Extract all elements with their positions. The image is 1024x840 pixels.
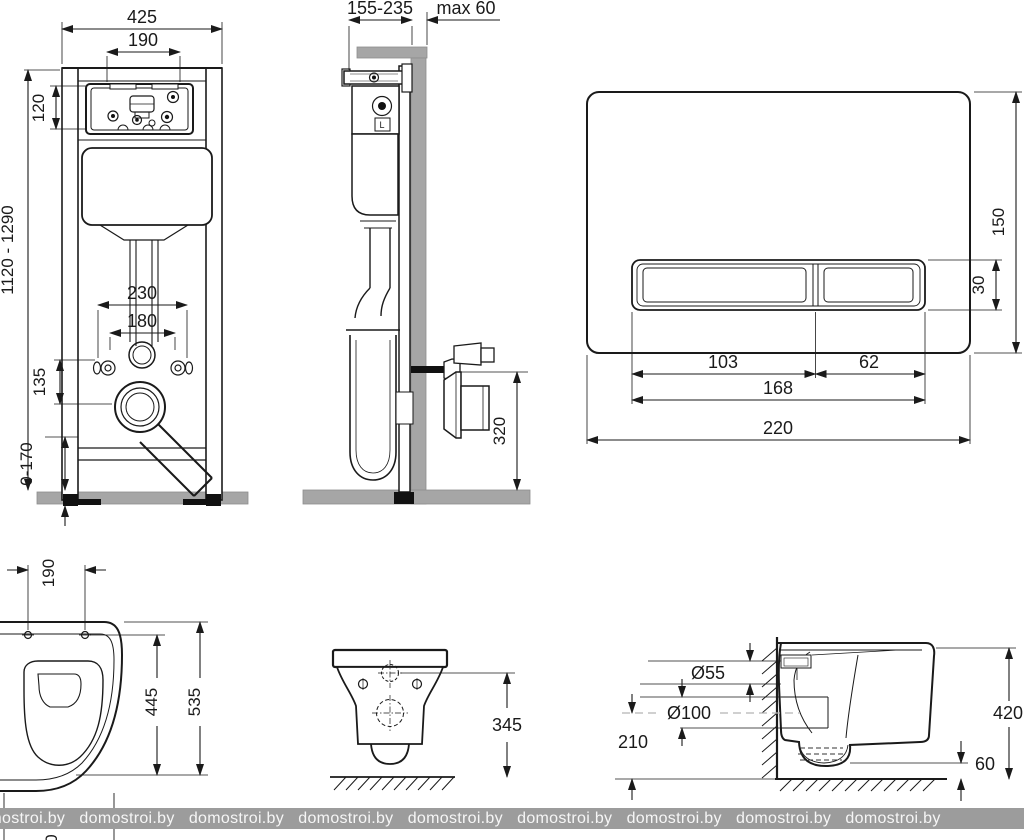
side-rail (399, 66, 410, 492)
dim-buttons-total: 168 (763, 378, 793, 398)
tank-label: L (379, 120, 384, 130)
floor-side (303, 490, 530, 504)
frame-rail-right (206, 68, 222, 500)
drawing-svg: 425 190 120 1120 - 1290 230 180 135 0-17… (0, 0, 1024, 840)
dim-bowl-height: 420 (993, 703, 1023, 723)
dim-button-height: 30 (969, 276, 988, 295)
technical-drawing-page: 425 190 120 1120 - 1290 230 180 135 0-17… (0, 0, 1024, 840)
dim-big-button: 103 (708, 352, 738, 372)
dim-outlet-center-height: 210 (618, 732, 648, 752)
bowl-rear-body (337, 667, 443, 744)
dim-depth-range: 155-235 (347, 0, 413, 18)
dim-height-range: 1120 - 1290 (0, 205, 17, 294)
plate-body (587, 92, 970, 353)
dim-access-width: 190 (128, 30, 158, 50)
dim-plate-width: 220 (763, 418, 793, 438)
access-box (86, 84, 193, 134)
wall-hatch (762, 637, 777, 779)
dim-wall-max: max 60 (436, 0, 495, 18)
labels-frame-front: 425 190 120 1120 - 1290 230 180 135 0-17… (0, 7, 158, 486)
partial-dimension: 0 (42, 834, 61, 840)
dim-access-height: 120 (29, 94, 48, 122)
frame-rail-left (62, 68, 78, 500)
view-bowl-rear (330, 650, 455, 790)
dim-foot-range: 0-170 (17, 442, 36, 485)
watermark-band: domostroi.by domostroi.by domostroi.by d… (0, 808, 1024, 829)
dim-rod-spacing: 230 (127, 283, 157, 303)
dim-plate-height: 150 (989, 208, 1008, 236)
dim-inner-depth: 445 (142, 688, 161, 716)
dim-inner-spacing: 180 (127, 311, 157, 331)
cistern-side (352, 86, 399, 228)
floor-hatch (775, 779, 947, 791)
dim-inlet-diameter: Ø55 (691, 663, 725, 683)
dim-outlet-height: 320 (490, 417, 509, 445)
wall-top-bar (357, 47, 427, 58)
watermark-text: domostroi.by domostroi.by domostroi.by d… (0, 810, 941, 828)
side-foot (394, 492, 414, 504)
dim-total-depth: 535 (185, 688, 204, 716)
dim-hole-spacing: 190 (39, 559, 58, 587)
dim-outlet-offset: 135 (30, 368, 49, 396)
dim-mount-height: 345 (492, 715, 522, 735)
dim-bottom-clearance: 60 (975, 754, 995, 774)
labels-frame-side: 155-235 max 60 320 L (347, 0, 509, 445)
dim-outlet-diameter: Ø100 (667, 703, 711, 723)
dim-total-width: 425 (127, 7, 157, 27)
ground-hatch-rear (330, 777, 455, 790)
wall-vertical (411, 58, 426, 504)
view-flush-plate (587, 92, 970, 353)
dim-small-button: 62 (859, 352, 879, 372)
